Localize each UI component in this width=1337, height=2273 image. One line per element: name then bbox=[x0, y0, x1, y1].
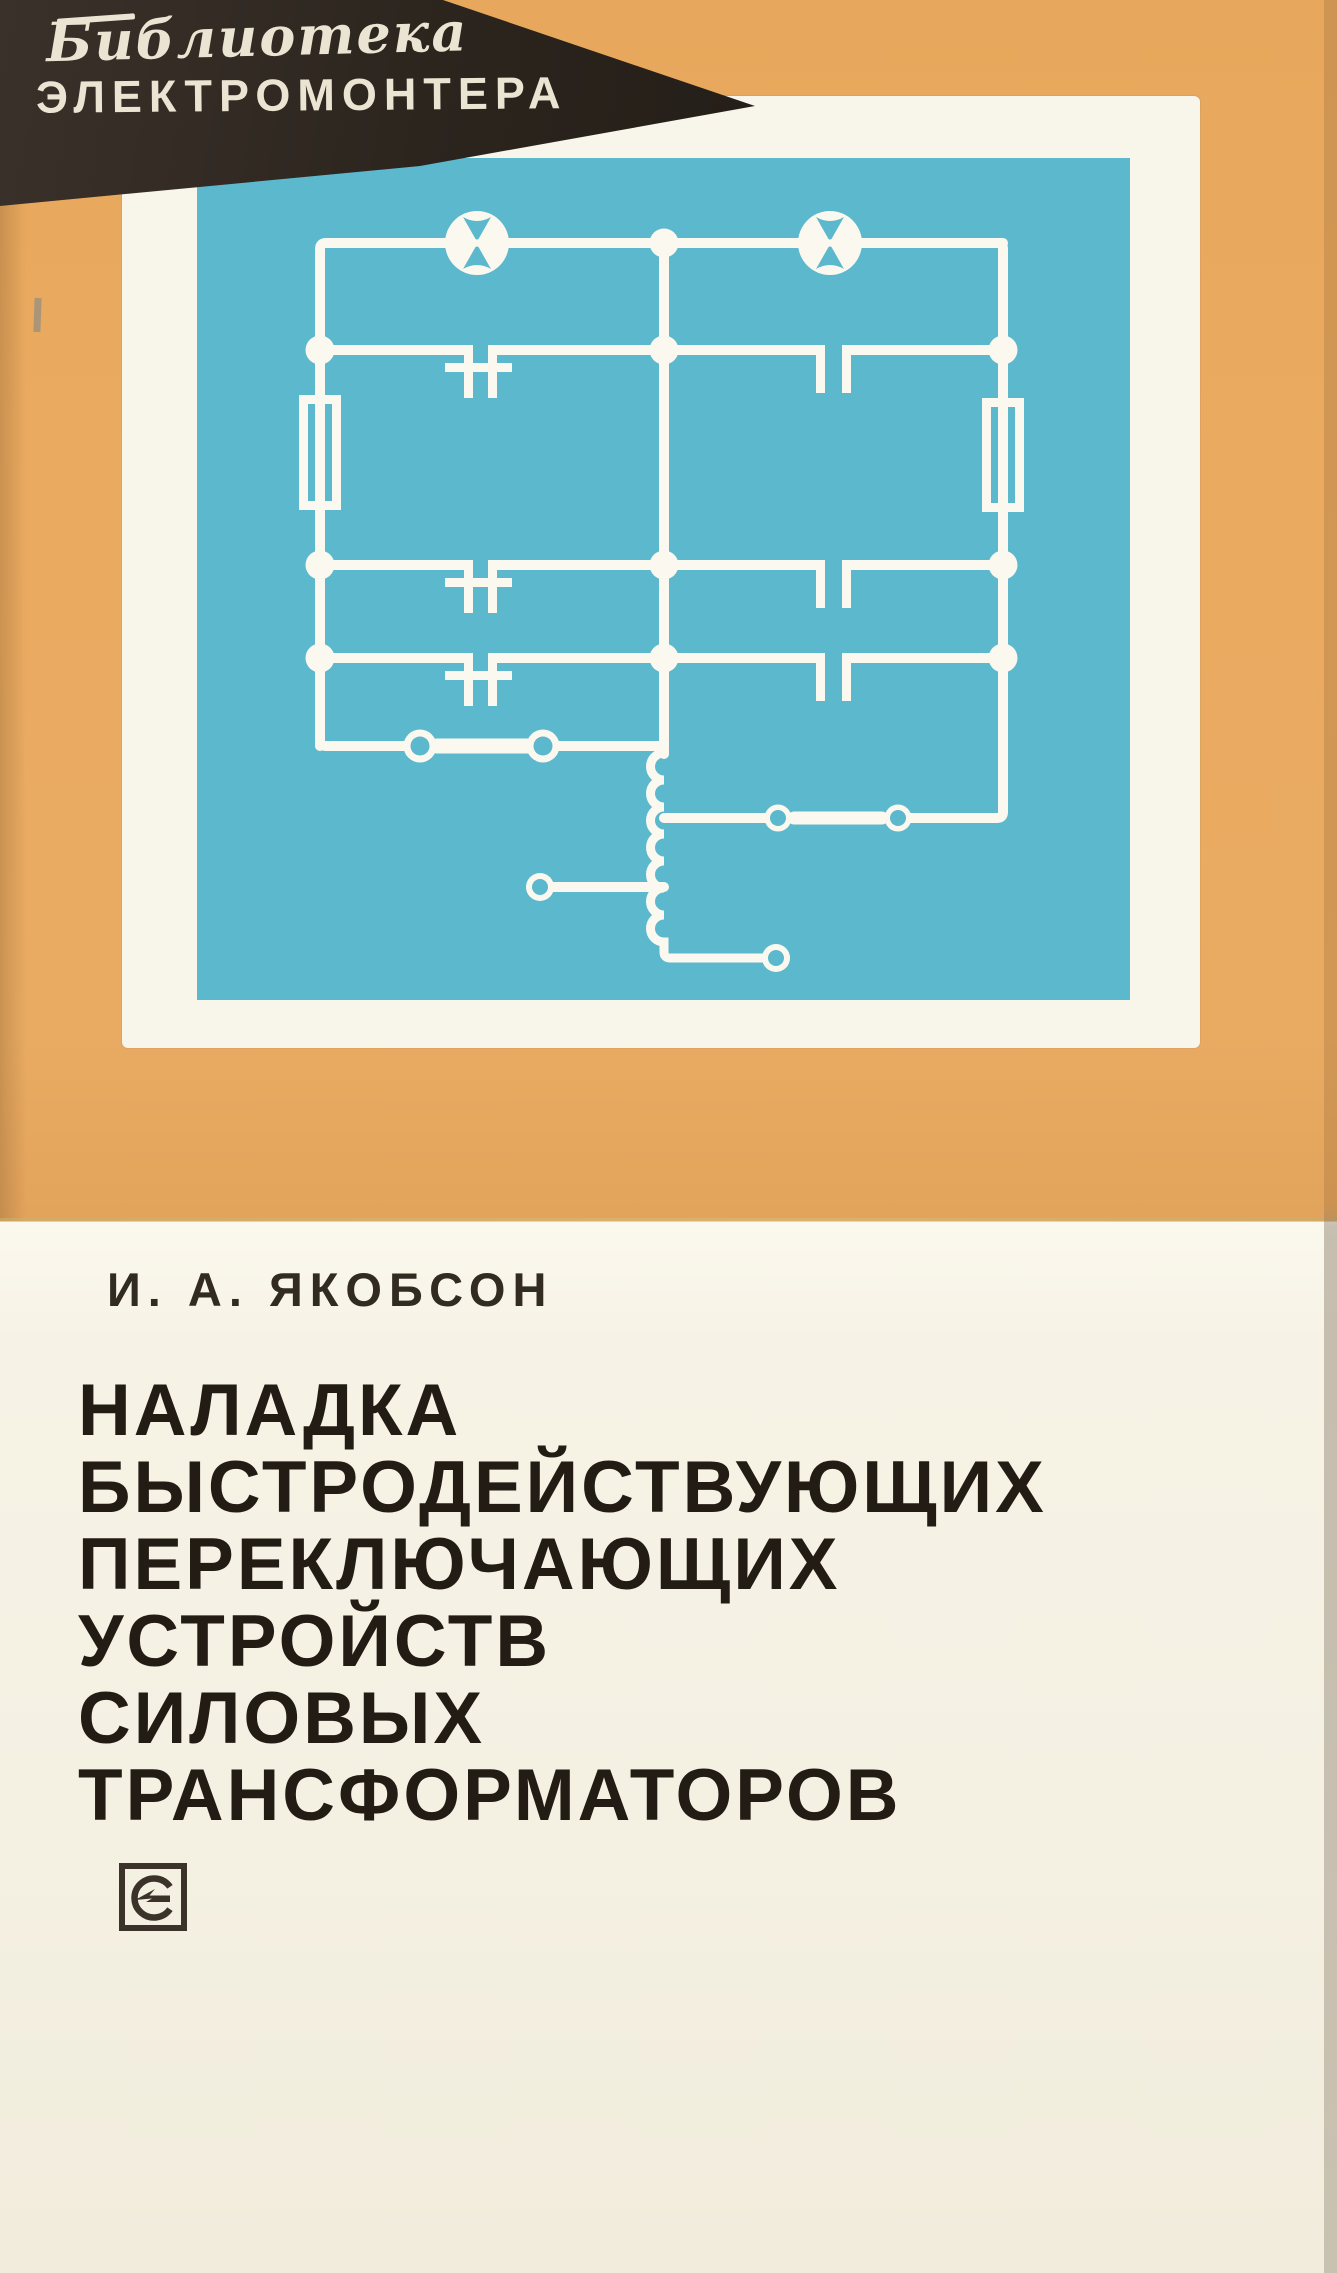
series-name-script: Библиотека bbox=[45, 0, 526, 72]
scan-artifact bbox=[33, 298, 41, 332]
fuse-contact-icon bbox=[404, 730, 560, 763]
title-line: НАЛАДКА bbox=[78, 1372, 1278, 1449]
terminal-icon bbox=[526, 873, 554, 901]
open-contact-icon bbox=[816, 560, 851, 608]
title-line: БЫСТРОДЕЙСТВУЮЩИХ bbox=[78, 1449, 1278, 1526]
book-cover: Библиотека ЭЛЕКТРОМОНТЕРА И. А. ЯКОБСОН … bbox=[0, 0, 1337, 2273]
title-line: ПЕРЕКЛЮЧАЮЩИХ bbox=[78, 1526, 1278, 1603]
lamp-icon bbox=[798, 211, 862, 275]
wire-right-vertical bbox=[664, 243, 1003, 818]
open-contact-icon bbox=[816, 653, 851, 701]
terminal-icon bbox=[762, 944, 790, 972]
author-name: И. А. ЯКОБСОН bbox=[107, 1266, 553, 1313]
color-band-divider bbox=[0, 1218, 1337, 1222]
book-title: НАЛАДКА БЫСТРОДЕЙСТВУЮЩИХ ПЕРЕКЛЮЧАЮЩИХ … bbox=[78, 1372, 1278, 1834]
page-edge-strip bbox=[1324, 0, 1337, 2273]
title-line: СИЛОВЫХ bbox=[78, 1680, 1278, 1757]
open-contact-icon bbox=[816, 345, 851, 393]
lamp-icon bbox=[445, 211, 509, 275]
fuse-contact-icon bbox=[765, 805, 912, 832]
circuit-diagram bbox=[197, 158, 1130, 1000]
title-line: ТРАНСФОРМАТОРОВ bbox=[78, 1757, 1278, 1834]
inductor-coil-icon bbox=[651, 753, 777, 958]
energiya-publisher-logo-icon bbox=[118, 1862, 188, 1932]
title-line: УСТРОЙСТВ bbox=[78, 1603, 1278, 1680]
series-name-caps: ЭЛЕКТРОМОНТЕРА bbox=[36, 71, 676, 119]
contact-symbols bbox=[445, 345, 851, 706]
